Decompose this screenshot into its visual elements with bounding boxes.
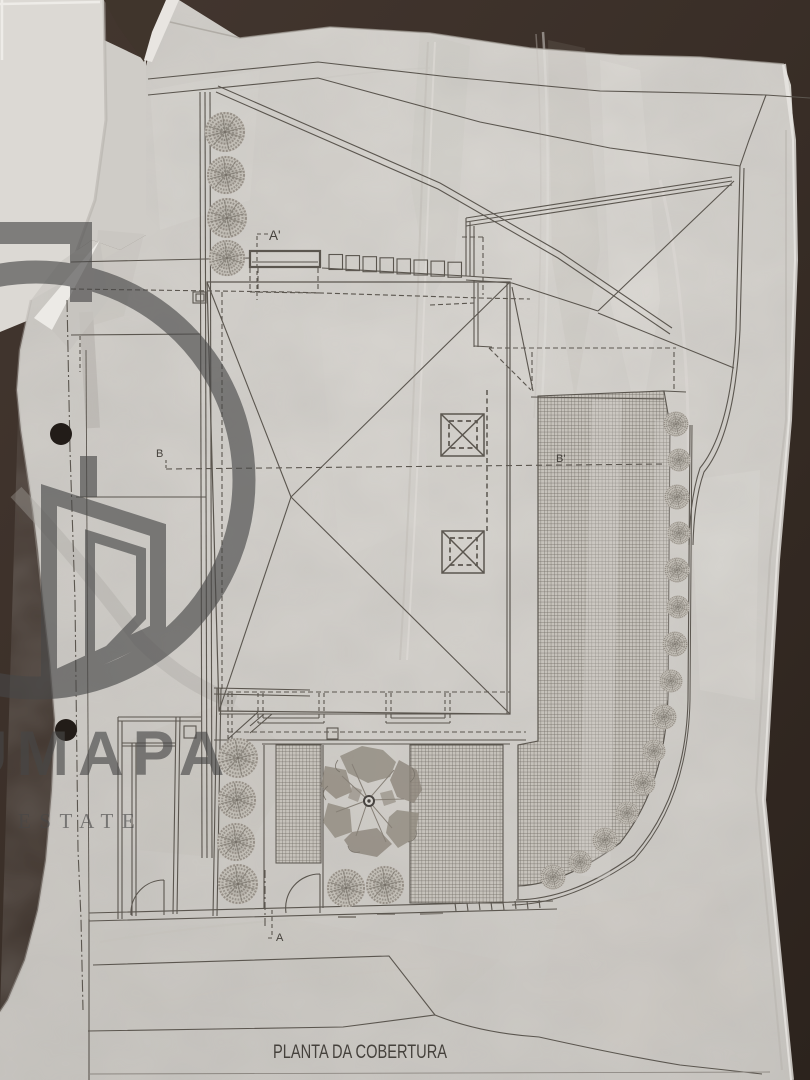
svg-text:A: A — [276, 932, 284, 944]
svg-text:PLANTA DA COBERTURA: PLANTA DA COBERTURA — [273, 1042, 447, 1063]
svg-text:ESTATE: ESTATE — [18, 809, 143, 833]
svg-text:UMAPA: UMAPA — [0, 719, 233, 789]
svg-text:A': A' — [269, 228, 281, 243]
svg-text:B: B — [156, 448, 163, 460]
svg-text:B': B' — [556, 453, 565, 465]
